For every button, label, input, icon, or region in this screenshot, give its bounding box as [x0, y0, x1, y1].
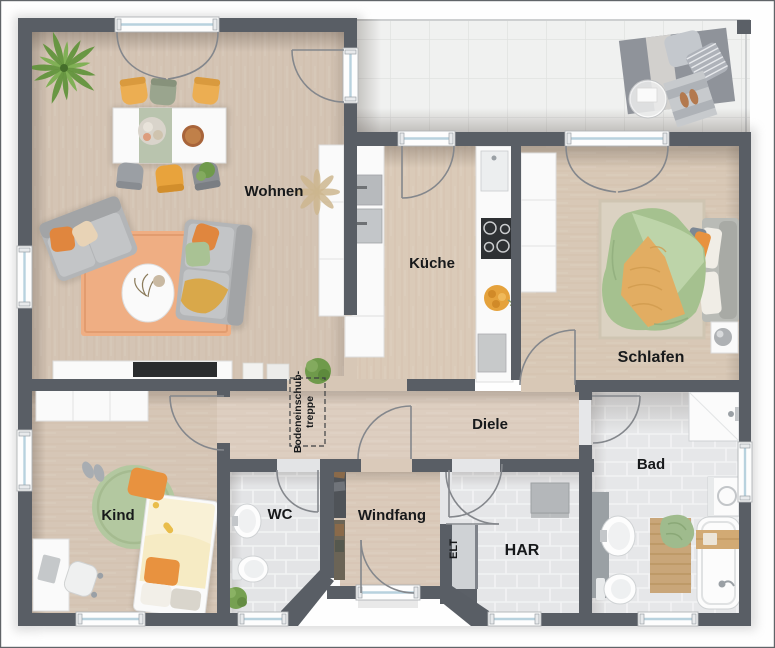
- svg-text:treppe: treppe: [304, 396, 316, 428]
- svg-text:Kind: Kind: [101, 507, 134, 524]
- svg-text:WC: WC: [268, 506, 293, 523]
- svg-text:Diele: Diele: [472, 416, 508, 433]
- svg-text:Küche: Küche: [409, 255, 455, 272]
- svg-text:ELT: ELT: [448, 539, 460, 559]
- svg-text:Schlafen: Schlafen: [618, 349, 685, 366]
- svg-text:Bodeneinschub-: Bodeneinschub-: [292, 370, 304, 453]
- svg-text:Wohnen: Wohnen: [245, 183, 304, 200]
- svg-text:HAR: HAR: [505, 542, 540, 559]
- svg-text:Windfang: Windfang: [358, 507, 426, 524]
- svg-text:Bad: Bad: [637, 456, 665, 473]
